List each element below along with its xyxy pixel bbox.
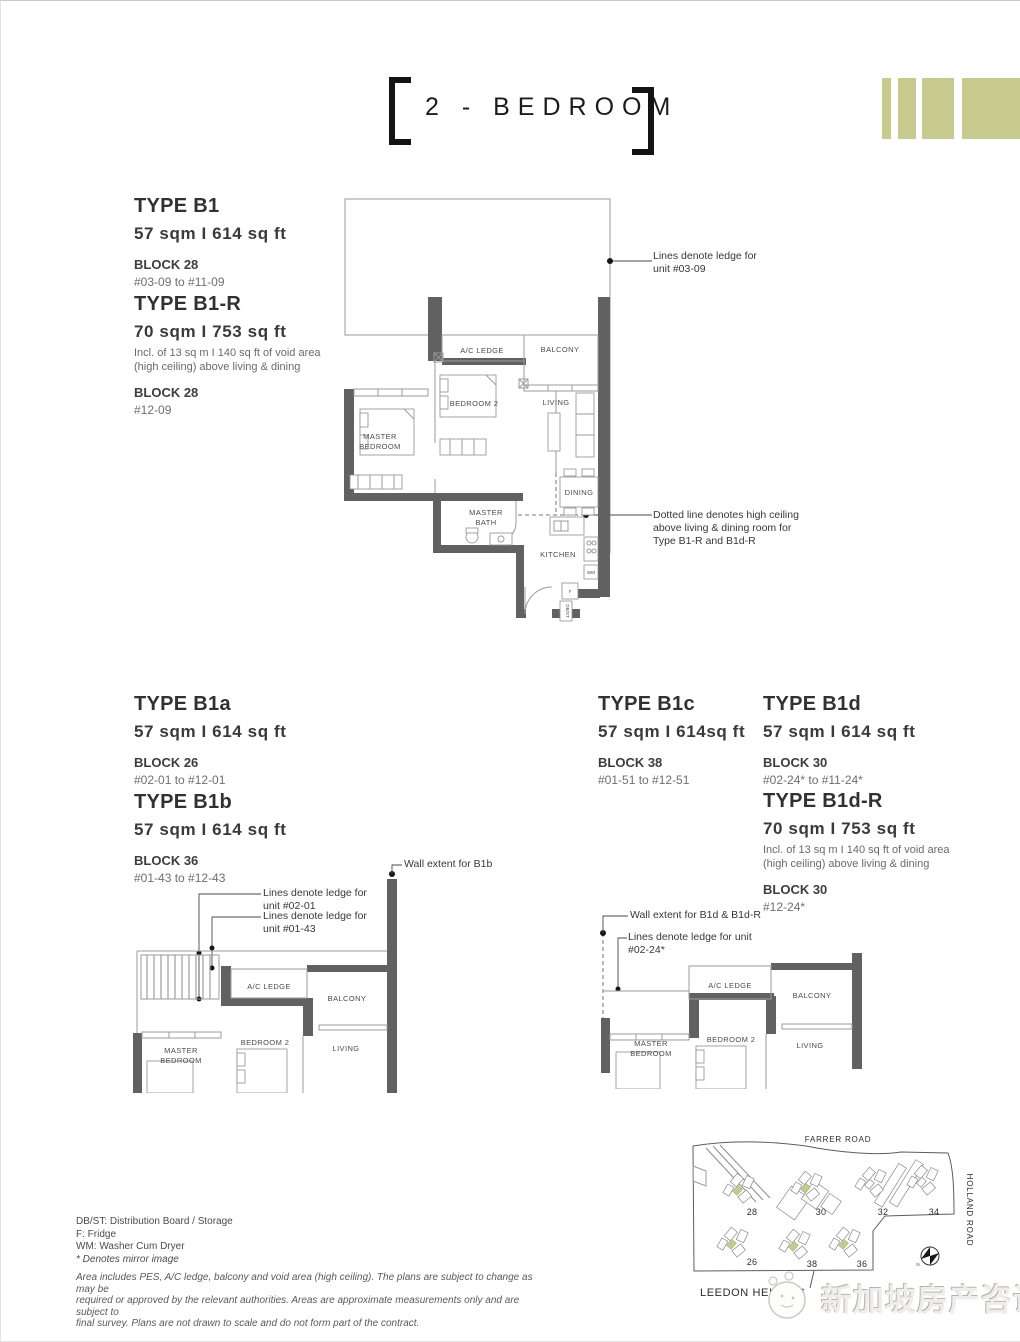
type-area: 70 sqm I 753 sq ft (763, 816, 1020, 841)
b1d-wall-annotation: Wall extent for B1d & B1d-R (630, 909, 761, 922)
kitchen-sink (550, 517, 584, 535)
entry-door (525, 587, 552, 614)
type-name: TYPE B1a (134, 692, 394, 717)
dbst-label: DB/ST (565, 604, 570, 618)
site-map: 28 30 32 34 26 38 36 FARRER ROAD HOLLAND… (686, 1126, 1016, 1296)
type-name: TYPE B1d-R (763, 789, 1020, 814)
room-label-living: LIVING (797, 1041, 824, 1050)
anno-line: Lines denote ledge for (263, 910, 367, 923)
fridge-label: F (569, 589, 572, 594)
legend-washer: WM: Washer Cum Dryer (76, 1241, 233, 1254)
anno-line: #02-24* (628, 944, 752, 957)
accent-square-2 (898, 78, 916, 139)
disclaimer-line: Area includes PES, A/C ledge, balcony an… (76, 1272, 546, 1295)
map-block-32: 32 (878, 1207, 888, 1217)
anno-line: Wall extent for B1d & B1d-R (630, 909, 761, 922)
db-storage: DB/ST (560, 601, 572, 621)
type-name: TYPE B1d (763, 692, 1020, 717)
room-label-living: LIVING (333, 1044, 360, 1053)
anno-line: unit #03-09 (653, 263, 757, 276)
watermark-logo-icon (751, 1267, 813, 1327)
room-label-ac-ledge: A/C LEDGE (247, 982, 291, 991)
b1d-ledge-annotation: Lines denote ledge for unit #02-24* (628, 931, 752, 957)
high-ceiling-annotation: Dotted line denotes high ceiling above l… (653, 509, 799, 548)
disclaimer-line: final survey. Plans are not drawn to sca… (76, 1318, 546, 1330)
map-block-36: 36 (857, 1259, 867, 1269)
room-label-master-2: BEDROOM (160, 1056, 202, 1065)
anno-line: Lines denote ledge for (263, 887, 367, 900)
type-units: #02-01 to #12-01 (134, 773, 394, 787)
watermark-text: 新加坡房产咨询 (821, 1275, 1020, 1320)
bedroom2-wardrobe (440, 439, 486, 455)
room-label-master-1: MASTER (164, 1046, 198, 1055)
room-label-bedroom2: BEDROOM 2 (241, 1038, 290, 1047)
room-label-dining: DINING (565, 488, 594, 497)
room-label-bedroom2: BEDROOM 2 (450, 399, 499, 408)
right-bracket-icon (632, 87, 654, 155)
block-cluster-36 (829, 1227, 860, 1257)
type-b1dr-info: TYPE B1d-R 70 sqm I 753 sq ft Incl. of 1… (763, 789, 1020, 914)
anno-line: Lines denote ledge for unit (628, 931, 752, 944)
map-block-28: 28 (747, 1207, 757, 1217)
disclaimer: Area includes PES, A/C ledge, balcony an… (76, 1272, 546, 1330)
room-label-living: LIVING (543, 398, 570, 407)
legend-mirror: * Denotes mirror image (76, 1254, 233, 1267)
compass-n-label: N (916, 1262, 919, 1267)
washer-label: WM (587, 570, 595, 575)
bedroom2-bed (440, 375, 496, 417)
brochure-page: 2 - BEDROOM TYPE B1 57 sqm I 614 sq ft B… (0, 0, 1020, 1342)
type-note-line2: (high ceiling) above living & dining (763, 857, 1020, 871)
master-bed (147, 1061, 193, 1093)
room-label-balcony: BALCONY (328, 994, 367, 1003)
room-label-bath-1: MASTER (469, 508, 503, 517)
fridge: F (562, 583, 578, 599)
master-wardrobe (350, 475, 402, 489)
main-ledge-annotation: Lines denote ledge for unit #03-09 (653, 250, 757, 276)
type-note-line1: Incl. of 13 sq m I 140 sq ft of void are… (763, 843, 1020, 857)
washer: WM (584, 565, 598, 579)
room-label-balcony: BALCONY (793, 991, 832, 1000)
type-area: 57 sqm I 614 sq ft (134, 817, 394, 842)
anno-line: Wall extent for B1b (404, 858, 492, 871)
block-cluster-38 (779, 1229, 810, 1259)
room-label-master-2: BEDROOM (359, 442, 401, 451)
tv-console (548, 413, 560, 451)
accent-square-4 (962, 78, 1020, 139)
map-block-26: 26 (747, 1257, 757, 1267)
room-label-master-1: MASTER (634, 1039, 668, 1048)
anno-line: above living & dining room for (653, 522, 799, 535)
b1b-wall-annotation: Wall extent for B1b (404, 858, 492, 871)
sofa (576, 393, 594, 457)
anno-line: Type B1-R and B1d-R (653, 535, 799, 548)
room-label-kitchen: KITCHEN (540, 550, 576, 559)
type-block: BLOCK 30 (763, 882, 1020, 897)
legend: DB/ST: Distribution Board / Storage F: F… (76, 1216, 233, 1266)
room-label-balcony: BALCONY (541, 345, 580, 354)
stove (584, 537, 598, 561)
type-area: 57 sqm I 614 sq ft (763, 719, 1020, 744)
type-block: BLOCK 26 (134, 755, 394, 770)
block-cluster-26 (717, 1227, 748, 1257)
legend-dbst: DB/ST: Distribution Board / Storage (76, 1216, 233, 1229)
anno-line: unit #01-43 (263, 923, 367, 936)
type-block: BLOCK 30 (763, 755, 1020, 770)
bath-fixtures (466, 528, 512, 545)
type-units: #02-24* to #11-24* (763, 773, 1020, 787)
room-label-bedroom2: BEDROOM 2 (707, 1035, 756, 1044)
accent-square-1 (882, 78, 891, 139)
map-block-34: 34 (929, 1207, 939, 1217)
anno-line: Dotted line denotes high ceiling (653, 509, 799, 522)
anno-line: Lines denote ledge for (653, 250, 757, 263)
room-label-ac-ledge: A/C LEDGE (708, 981, 752, 990)
legend-fridge: F: Fridge (76, 1229, 233, 1242)
room-label-master-1: MASTER (363, 432, 397, 441)
ledge-hatch (141, 955, 219, 999)
room-label-ac-ledge: A/C LEDGE (460, 346, 504, 355)
room-label-bath-2: BATH (475, 518, 496, 527)
block-cluster-28 (723, 1173, 754, 1203)
accent-square-3 (922, 78, 954, 139)
holland-road-label: HOLLAND ROAD (965, 1174, 974, 1247)
left-bracket-icon (389, 77, 411, 145)
compass-icon: N (916, 1247, 939, 1267)
ledge-anno-dot (607, 258, 613, 264)
type-name: TYPE B1b (134, 790, 394, 815)
type-area: 57 sqm I 614 sq ft (134, 719, 394, 744)
farrer-road-label: FARRER ROAD (805, 1135, 872, 1144)
room-label-master-2: BEDROOM (630, 1049, 672, 1058)
b1b-ledge-annotation-b: Lines denote ledge for unit #01-43 (263, 910, 367, 936)
map-block-30: 30 (816, 1207, 826, 1217)
disclaimer-line: required or approved by the relevant aut… (76, 1295, 546, 1318)
type-b1d-info: TYPE B1d 57 sqm I 614 sq ft BLOCK 30 #02… (763, 692, 1020, 787)
type-note: Incl. of 13 sq m I 140 sq ft of void are… (763, 843, 1020, 871)
type-b1a-info: TYPE B1a 57 sqm I 614 sq ft BLOCK 26 #02… (134, 692, 394, 787)
